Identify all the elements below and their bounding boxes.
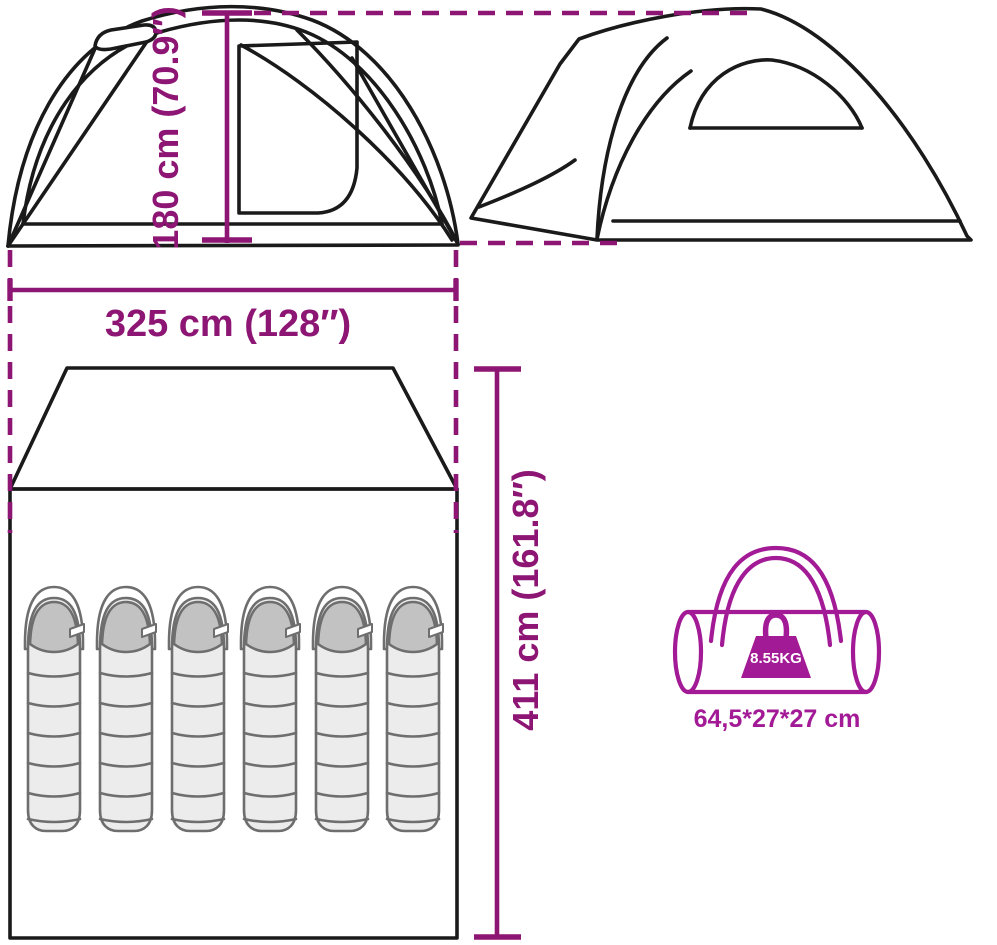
- carry-bag: 8.55KG 64,5*27*27 cm: [675, 548, 879, 733]
- front-door: [239, 42, 357, 213]
- sleeping-bag-icon: [25, 587, 84, 831]
- sleeping-bags-row: [25, 587, 443, 831]
- height-dimension-label: 180 cm (70.9″): [145, 6, 186, 249]
- carry-bag-size-label: 64,5*27*27 cm: [694, 705, 861, 733]
- sleeping-bag-icon: [97, 587, 156, 831]
- front-view: [8, 7, 458, 246]
- floor-plan: [10, 368, 457, 938]
- sleeping-bag-icon: [241, 587, 300, 831]
- length-dimension-label: 411 cm (161.8″): [505, 469, 546, 730]
- front-ground-line: [8, 245, 458, 246]
- side-inner-dome: [690, 60, 862, 128]
- duffel-bag-handle-inner: [722, 558, 830, 645]
- side-pole-seam: [597, 71, 691, 239]
- width-dimension-label: 325 cm (128″): [105, 303, 351, 345]
- side-vestibule-seam: [479, 160, 575, 207]
- side-outline: [471, 9, 971, 240]
- front-pole-seam: [8, 44, 97, 246]
- tent-dimension-diagram: 325 cm (128″) 180 cm (70.9″) 411 cm (161…: [0, 0, 997, 945]
- sleeping-bag-icon: [169, 587, 228, 831]
- floorplan-porch-trapezoid: [10, 368, 457, 489]
- duffel-bag-end-right: [853, 612, 879, 692]
- front-fly-seam: [241, 45, 452, 240]
- diagram-canvas: 325 cm (128″) 180 cm (70.9″) 411 cm (161…: [0, 0, 997, 945]
- sleeping-bag-icon: [384, 587, 443, 831]
- duffel-bag-end-left: [675, 612, 701, 692]
- carry-bag-weight-label: 8.55KG: [750, 650, 802, 667]
- side-view: [471, 9, 971, 240]
- sleeping-bag-icon: [313, 587, 372, 831]
- weight-icon-loop: [766, 615, 787, 638]
